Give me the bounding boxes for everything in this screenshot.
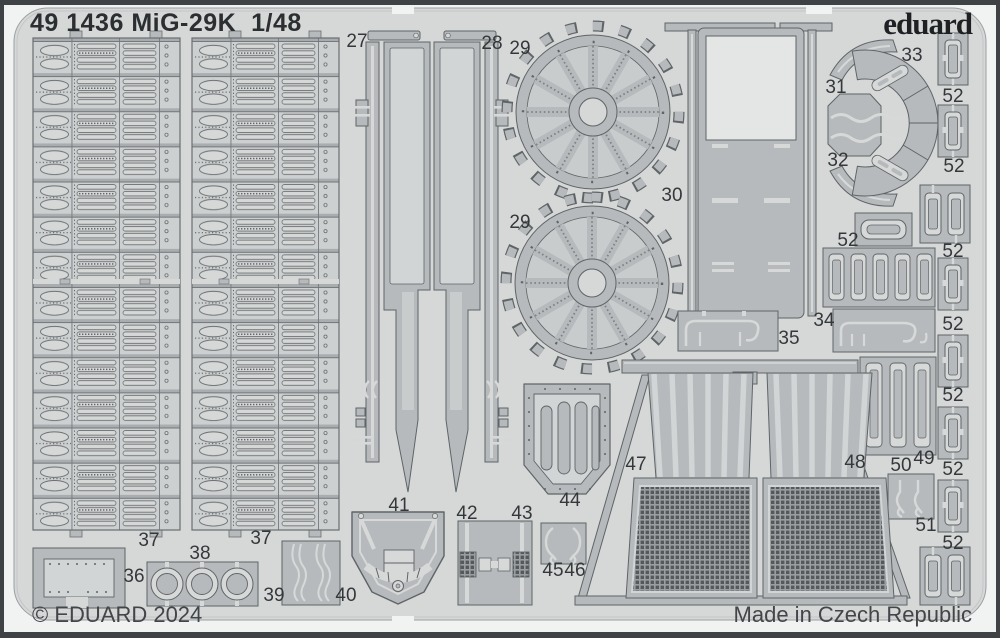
part-label-42-17: 42 bbox=[456, 503, 477, 525]
part-label-27-0: 27 bbox=[346, 31, 367, 53]
part-label-39-14: 39 bbox=[263, 585, 284, 607]
part-label-40-15: 40 bbox=[335, 585, 356, 607]
part-label-50-25: 50 bbox=[890, 455, 911, 477]
copyright-text: © EDUARD 2024 bbox=[32, 602, 202, 628]
part-label-52-33: 52 bbox=[942, 459, 963, 481]
part-label-41-16: 41 bbox=[388, 495, 409, 517]
part-label-52-34: 52 bbox=[942, 533, 963, 555]
part-label-37-11: 37 bbox=[138, 530, 159, 552]
part-label-45-20: 45 bbox=[542, 560, 563, 582]
made-in-text: Made in Czech Republic bbox=[734, 602, 972, 628]
part-label-47-22: 47 bbox=[625, 454, 646, 476]
part-label-49-24: 49 bbox=[913, 448, 934, 470]
part-label-51-26: 51 bbox=[915, 515, 936, 537]
part-label-48-23: 48 bbox=[844, 452, 865, 474]
part-label-46-21: 46 bbox=[564, 560, 585, 582]
part-35-plate bbox=[678, 311, 778, 351]
part-44-panel bbox=[524, 384, 610, 494]
part-label-35-9: 35 bbox=[778, 328, 799, 350]
part-label-52-31: 52 bbox=[942, 314, 963, 336]
part-39-40-plate bbox=[282, 541, 340, 605]
part-label-33-7: 33 bbox=[901, 45, 922, 67]
part-label-30-4: 30 bbox=[661, 185, 682, 207]
part-50-51-hook-plate bbox=[888, 474, 934, 519]
part-42-43-plate bbox=[458, 521, 532, 605]
part-label-52-29: 52 bbox=[943, 156, 964, 178]
part-label-29-3: 29 bbox=[509, 212, 530, 234]
eduard-logo: eduard bbox=[883, 6, 972, 42]
part-label-52-30: 52 bbox=[942, 241, 963, 263]
part-49-plate bbox=[860, 357, 936, 455]
part-label-29-2: 29 bbox=[509, 38, 530, 60]
part-label-34-8: 34 bbox=[813, 310, 834, 332]
part-52-horizontal-buckle bbox=[855, 213, 912, 246]
part-label-31-5: 31 bbox=[825, 77, 846, 99]
part-label-28-1: 28 bbox=[481, 33, 502, 55]
part-36-frame bbox=[33, 548, 125, 608]
part-label-32-6: 32 bbox=[827, 150, 848, 172]
part-52-five-buckle-plate bbox=[823, 248, 935, 307]
part-38-rings-plate bbox=[147, 562, 258, 606]
part-label-44-19: 44 bbox=[559, 490, 580, 512]
part-45-46-hook-plate bbox=[541, 523, 586, 564]
part-label-37-12: 37 bbox=[250, 528, 271, 550]
part-label-52-27: 52 bbox=[837, 230, 858, 252]
part-label-43-18: 43 bbox=[511, 503, 532, 525]
part-label-52-32: 52 bbox=[942, 385, 963, 407]
part-label-52-28: 52 bbox=[942, 86, 963, 108]
part-label-38-13: 38 bbox=[189, 543, 210, 565]
part-34-plate bbox=[833, 309, 935, 352]
part-label-36-10: 36 bbox=[123, 566, 144, 588]
photo-etch-fret-scan: 49 1436 MiG-29K 1/48 eduard © EDUARD 202… bbox=[0, 0, 1000, 638]
sheet-title: 49 1436 MiG-29K 1/48 bbox=[30, 9, 302, 38]
